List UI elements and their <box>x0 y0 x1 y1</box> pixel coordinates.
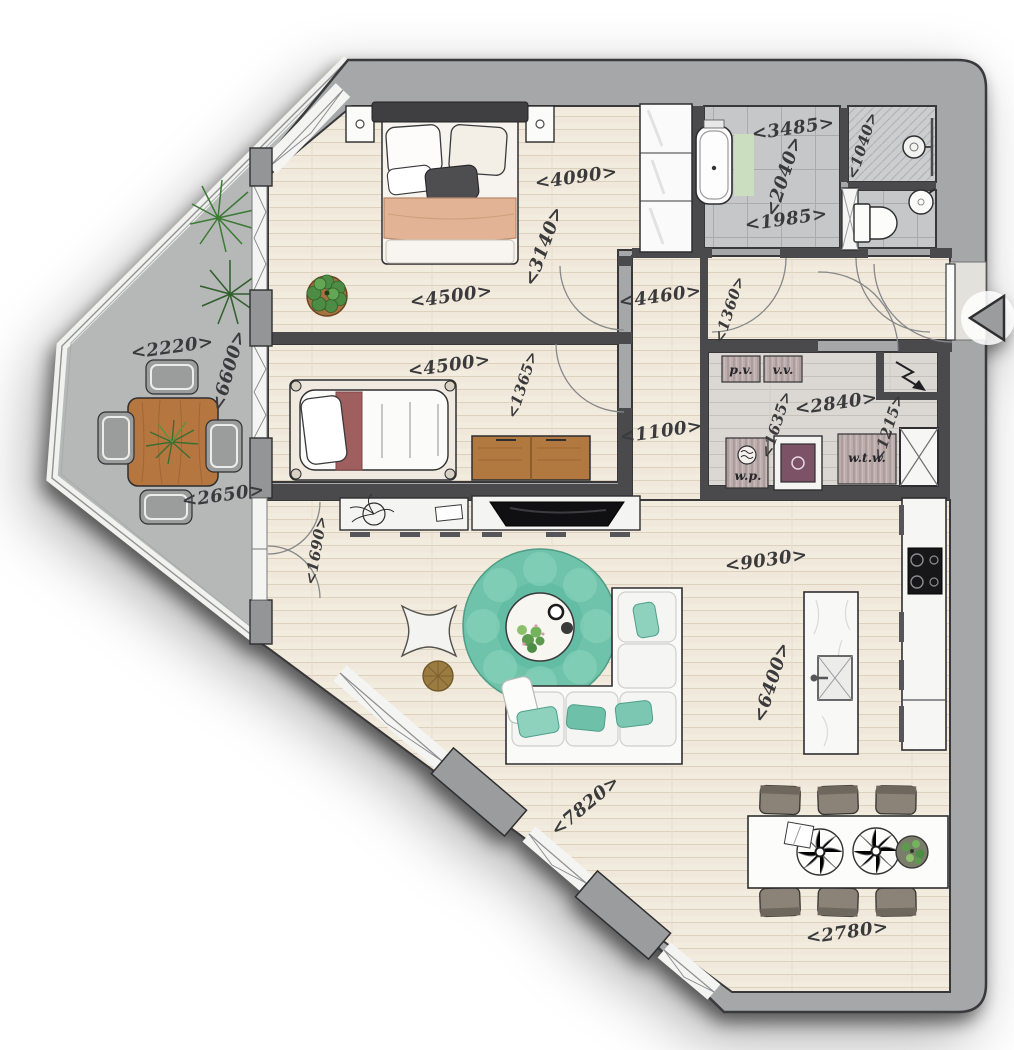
pillow <box>300 395 348 465</box>
unit-boiler <box>774 436 822 490</box>
wardrobe <box>640 104 692 252</box>
coffee-table <box>506 593 574 661</box>
kitchen-counter <box>899 498 946 750</box>
blanket <box>384 198 516 242</box>
shaft <box>900 428 938 486</box>
label-unit-wtw: w.t.w. <box>848 450 886 465</box>
floor-plan-svg: <4090> <3140> <4500> <4460> <1360> <3485… <box>0 0 1014 1050</box>
label-unit-wp: w.p. <box>735 468 762 483</box>
shower-head-icon <box>903 136 925 158</box>
label-unit-pv: p.v. <box>729 362 752 377</box>
nightstand-left <box>346 106 374 142</box>
tv <box>490 502 624 526</box>
dresser <box>472 436 590 480</box>
pendant-lamp <box>853 828 899 874</box>
entrance-door-leaf <box>946 264 955 340</box>
label-unit-vv: v.v. <box>773 362 794 377</box>
headboard <box>372 102 528 122</box>
bathtub <box>696 120 732 204</box>
sideboard <box>340 494 468 537</box>
pouf <box>423 661 453 691</box>
book <box>435 505 462 522</box>
nightstand-right <box>526 106 554 142</box>
bath-mat <box>734 134 754 196</box>
menu-book <box>784 822 813 848</box>
cooktop <box>908 548 942 594</box>
plant-tray <box>896 836 928 868</box>
single-bed <box>290 380 456 480</box>
bedroom1-plant <box>307 275 347 316</box>
balcony-table <box>128 398 218 486</box>
toilet <box>854 204 897 242</box>
floor-plan-page: <4090> <3140> <4500> <4460> <1360> <3485… <box>0 0 1014 1050</box>
kitchen-island <box>804 592 858 754</box>
double-bed <box>372 102 528 264</box>
dish <box>561 622 573 634</box>
entrance-arrow-icon <box>961 291 1014 345</box>
bowl <box>549 605 563 619</box>
